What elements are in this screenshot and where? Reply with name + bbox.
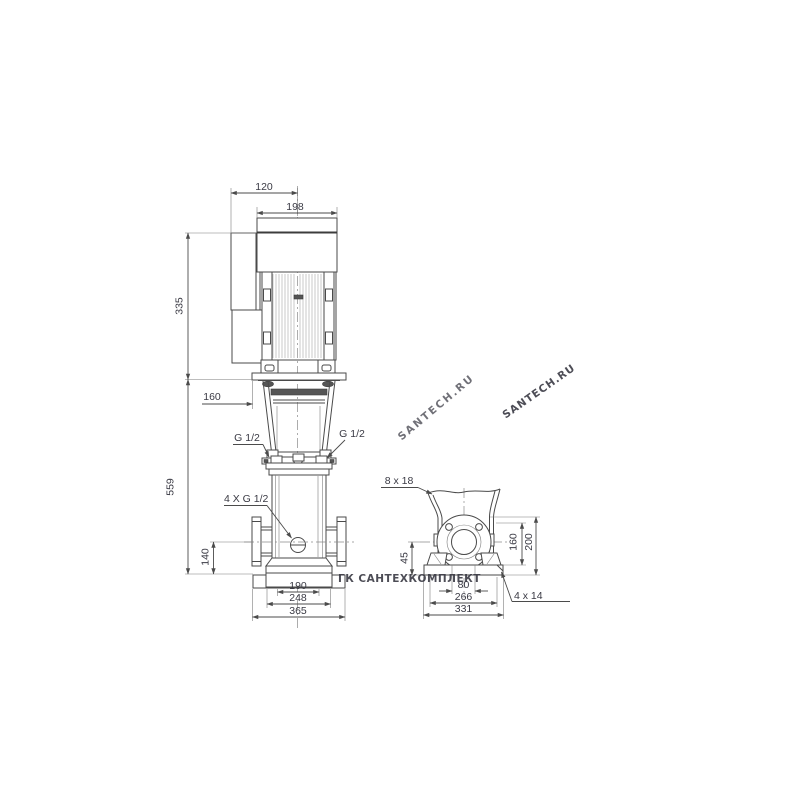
watermark-horizontal: ГК САНТЕХКОМПЛЕКТ — [338, 573, 481, 585]
label-holes-4x14: 4 x 14 — [514, 590, 543, 602]
dim-198: 198 — [286, 201, 304, 213]
dim-200: 200 — [523, 533, 535, 551]
side-view: 8 x 18 45 160 200 80 266 — [381, 475, 570, 619]
label-g12-right: G 1/2 — [339, 428, 365, 440]
watermark-secondary: SANTECH.RU — [501, 362, 578, 421]
motor-fan-cover — [257, 218, 337, 272]
dim-365: 365 — [289, 605, 307, 617]
dim-140: 140 — [200, 548, 212, 566]
pump-dimensional-drawing: 120 198 335 559 160 G 1/2 G 1/2 — [0, 0, 800, 800]
label-holes-8x18: 8 x 18 — [385, 475, 414, 487]
dim-559: 559 — [165, 478, 177, 496]
dim-190: 190 — [289, 580, 307, 592]
motor-fins — [260, 272, 336, 360]
dim-335: 335 — [174, 297, 186, 315]
drawing-canvas: 120 198 335 559 160 G 1/2 G 1/2 — [0, 0, 800, 800]
dim-266: 266 — [455, 591, 473, 603]
dim-160-side: 160 — [508, 533, 520, 551]
motor-flange — [252, 360, 346, 387]
dim-248: 248 — [289, 592, 307, 604]
dim-45: 45 — [399, 552, 411, 564]
front-view: 120 198 335 559 160 G 1/2 G 1/2 — [165, 181, 365, 628]
watermark-main: SANTECH.RU — [396, 372, 477, 443]
label-4xg12: 4 X G 1/2 — [224, 493, 269, 505]
coupling-guard — [271, 389, 327, 395]
dim-160-front: 160 — [203, 391, 221, 403]
chamber-stack — [272, 475, 326, 558]
dim-331: 331 — [455, 603, 473, 615]
dim-120: 120 — [255, 181, 273, 193]
label-g12-left: G 1/2 — [234, 432, 260, 444]
pump-head — [266, 454, 332, 475]
